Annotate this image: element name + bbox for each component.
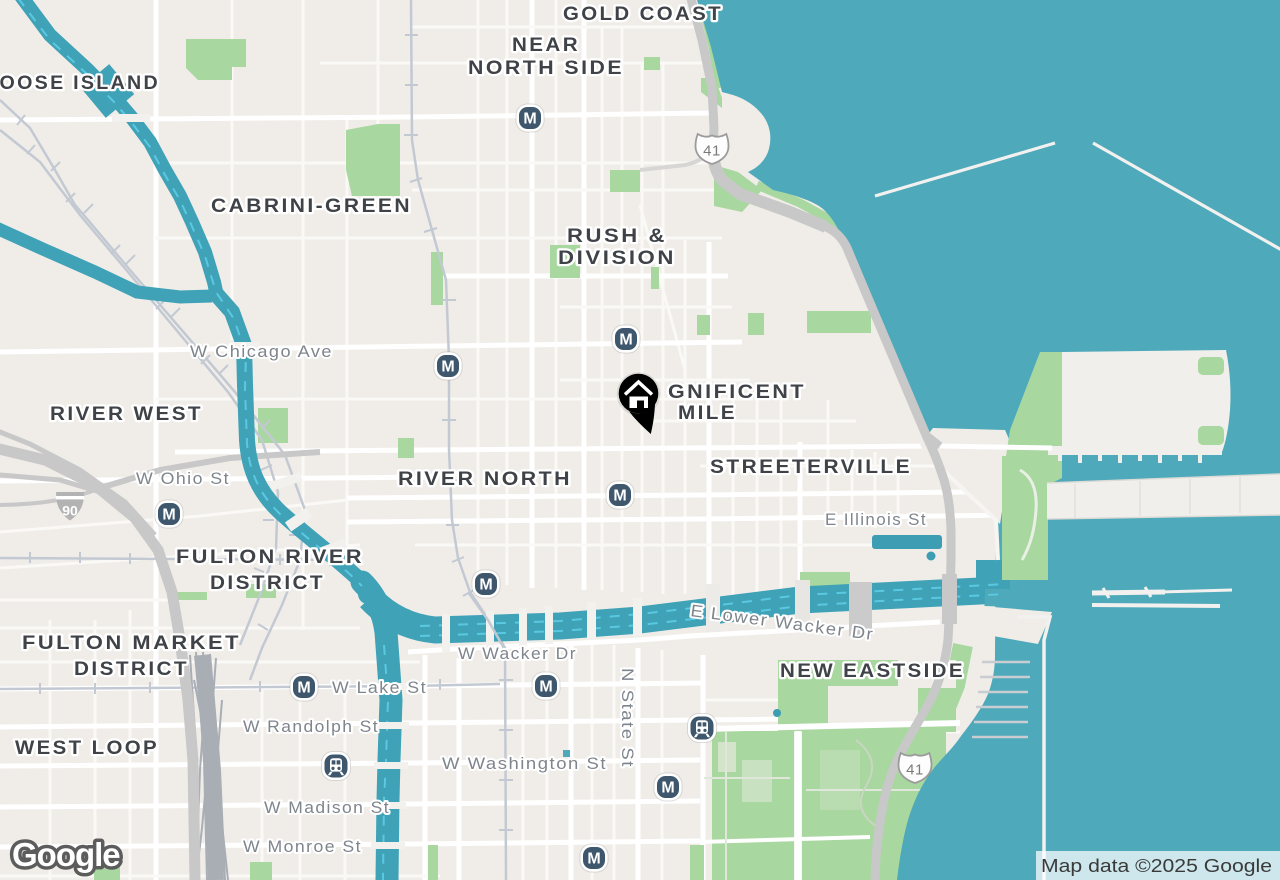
svg-text:DISTRICT: DISTRICT [74,659,189,680]
svg-text:W Washington St: W Washington St [442,754,607,773]
svg-text:NORTH SIDE: NORTH SIDE [468,58,624,79]
svg-text:RUSH &: RUSH & [567,226,667,247]
svg-text:GOLD COAST: GOLD COAST [563,4,723,25]
svg-text:DIVISION: DIVISION [558,248,676,269]
svg-text:Map data ©2025 Google: Map data ©2025 Google [1041,855,1272,876]
svg-text:STREETERVILLE: STREETERVILLE [710,457,912,478]
svg-text:W Lake St: W Lake St [332,678,427,697]
svg-text:NEW EASTSIDE: NEW EASTSIDE [780,661,965,682]
svg-text:N State St: N State St [618,668,637,768]
svg-text:W Madison St: W Madison St [264,798,390,817]
svg-text:CABRINI-GREEN: CABRINI-GREEN [211,196,412,217]
svg-text:FULTON RIVER: FULTON RIVER [176,547,364,568]
svg-text:FULTON MARKET: FULTON MARKET [22,633,241,654]
svg-text:RIVER WEST: RIVER WEST [50,404,203,425]
svg-text:DISTRICT: DISTRICT [210,573,325,594]
svg-text:E Illinois St: E Illinois St [825,510,927,529]
svg-text:MILE: MILE [678,403,737,424]
svg-text:W Wacker Dr: W Wacker Dr [458,644,577,663]
svg-text:NEAR: NEAR [512,35,580,56]
svg-text:90: 90 [62,503,78,519]
svg-text:W Ohio St: W Ohio St [136,469,230,488]
svg-text:GNIFICENT: GNIFICENT [668,382,806,403]
svg-text:W Chicago Ave: W Chicago Ave [190,342,333,361]
svg-text:Google: Google [12,836,120,873]
svg-text:W Randolph St: W Randolph St [243,717,379,736]
svg-text:RIVER NORTH: RIVER NORTH [398,469,572,490]
svg-text:W Monroe St: W Monroe St [243,837,362,856]
svg-text:WEST LOOP: WEST LOOP [15,738,159,759]
svg-text:GOOSE ISLAND: GOOSE ISLAND [0,73,160,94]
